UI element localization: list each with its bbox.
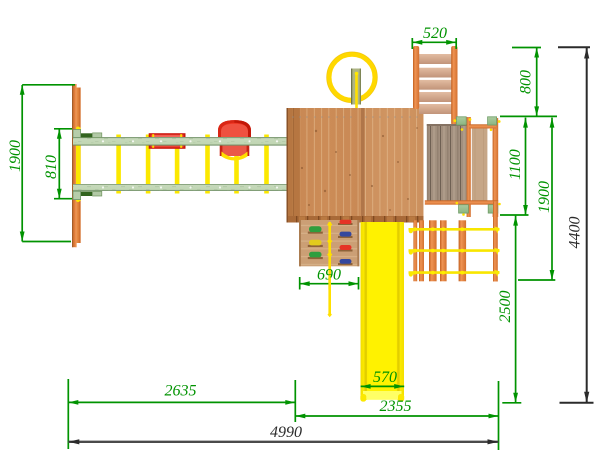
svg-text:2355: 2355: [380, 398, 412, 415]
svg-text:810: 810: [43, 155, 60, 179]
svg-text:1900: 1900: [7, 140, 24, 172]
svg-text:570: 570: [373, 369, 397, 386]
svg-text:1900: 1900: [536, 181, 553, 213]
svg-text:800: 800: [518, 70, 535, 94]
svg-text:520: 520: [423, 25, 447, 42]
svg-text:1100: 1100: [507, 149, 524, 180]
svg-text:2635: 2635: [165, 383, 197, 400]
svg-text:4990: 4990: [270, 424, 302, 441]
svg-text:4400: 4400: [567, 217, 584, 249]
svg-text:2500: 2500: [497, 291, 514, 323]
